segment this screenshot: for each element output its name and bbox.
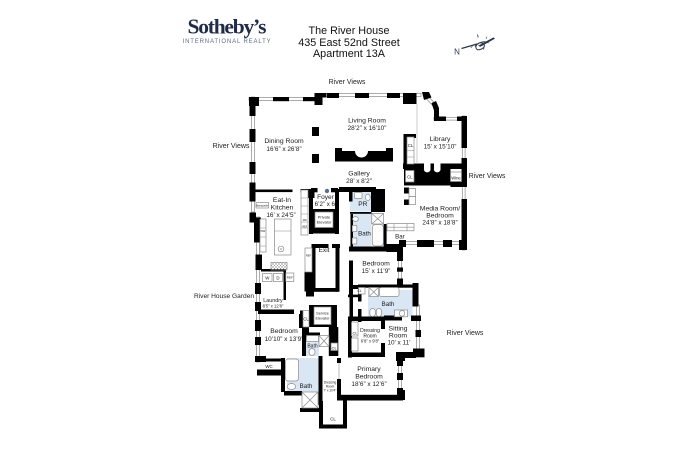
svg-text:Wine: Wine bbox=[451, 176, 461, 181]
svg-text:PR: PR bbox=[358, 201, 367, 208]
svg-text:Bath: Bath bbox=[307, 344, 318, 350]
svg-text:Living Room: Living Room bbox=[348, 118, 386, 125]
svg-text:Service: Service bbox=[316, 312, 329, 316]
svg-text:Bath: Bath bbox=[358, 230, 371, 237]
svg-text:The River House: The River House bbox=[308, 25, 389, 37]
svg-text:8’5” x 12’8”: 8’5” x 12’8” bbox=[263, 304, 284, 309]
svg-text:Media Room/: Media Room/ bbox=[420, 206, 461, 213]
svg-text:Kitchen: Kitchen bbox=[271, 205, 294, 212]
svg-text:28’2” x 16’10”: 28’2” x 16’10” bbox=[348, 125, 387, 132]
svg-text:River House Garden: River House Garden bbox=[194, 293, 254, 300]
svg-text:15’ x 15’10”: 15’ x 15’10” bbox=[424, 144, 457, 151]
svg-text:REF: REF bbox=[306, 254, 312, 258]
svg-text:River Views: River Views bbox=[213, 143, 250, 150]
svg-text:16’6” x 26’8”: 16’6” x 26’8” bbox=[266, 146, 301, 153]
svg-text:Library: Library bbox=[430, 136, 451, 143]
svg-text:CL: CL bbox=[303, 317, 309, 322]
svg-text:Exit: Exit bbox=[319, 247, 330, 254]
svg-text:Primary: Primary bbox=[357, 366, 381, 373]
svg-text:INTERNATIONAL REALTY: INTERNATIONAL REALTY bbox=[183, 39, 272, 45]
svg-text:6’8” x 9’8”: 6’8” x 9’8” bbox=[361, 339, 380, 344]
svg-text:Bedroom: Bedroom bbox=[426, 213, 454, 220]
svg-text:Bedroom: Bedroom bbox=[270, 328, 298, 335]
svg-text:Bath: Bath bbox=[382, 301, 395, 308]
svg-text:Foyer: Foyer bbox=[317, 194, 335, 201]
svg-text:Elevator: Elevator bbox=[316, 317, 331, 321]
svg-text:Bedroom: Bedroom bbox=[355, 374, 383, 381]
svg-text:Bedroom: Bedroom bbox=[362, 261, 390, 268]
svg-text:CL: CL bbox=[332, 346, 338, 351]
svg-text:10’10” x 13’9”: 10’10” x 13’9” bbox=[265, 336, 304, 343]
svg-text:Sitting: Sitting bbox=[389, 326, 408, 333]
svg-text:Dining Room: Dining Room bbox=[264, 138, 304, 145]
svg-text:28’ x 8’2”: 28’ x 8’2” bbox=[346, 178, 372, 185]
svg-text:Room: Room bbox=[389, 333, 407, 340]
svg-text:Eat-In: Eat-In bbox=[273, 197, 291, 204]
svg-text:6’2” x 6’: 6’2” x 6’ bbox=[315, 201, 337, 208]
svg-text:24’8” x 18’8”: 24’8” x 18’8” bbox=[422, 220, 457, 227]
svg-text:River Views: River Views bbox=[447, 330, 484, 337]
svg-text:7’ x 10’4”: 7’ x 10’4” bbox=[324, 389, 337, 393]
svg-text:Bar: Bar bbox=[395, 234, 405, 241]
svg-text:CL: CL bbox=[357, 289, 361, 293]
svg-text:River Views: River Views bbox=[329, 79, 366, 86]
svg-text:CL: CL bbox=[352, 331, 358, 336]
svg-text:Elevator: Elevator bbox=[317, 220, 332, 225]
svg-text:River Views: River Views bbox=[469, 173, 506, 180]
svg-text:Apartment 13A: Apartment 13A bbox=[313, 48, 386, 60]
svg-text:CL: CL bbox=[407, 175, 413, 180]
svg-text:D: D bbox=[276, 276, 279, 281]
svg-text:Banquette: Banquette bbox=[256, 203, 268, 207]
svg-text:15’ x 11’9”: 15’ x 11’9” bbox=[362, 268, 391, 275]
svg-text:435 East 52nd Street: 435 East 52nd Street bbox=[298, 37, 399, 49]
svg-text:18’6” x 12’6”: 18’6” x 12’6” bbox=[351, 381, 386, 388]
svg-text:DW: DW bbox=[261, 229, 266, 233]
svg-text:CL: CL bbox=[408, 143, 414, 148]
svg-text:REF: REF bbox=[302, 226, 307, 229]
svg-text:WC: WC bbox=[265, 364, 272, 369]
svg-text:N: N bbox=[454, 48, 460, 57]
svg-text:10’ x 11’: 10’ x 11’ bbox=[387, 340, 411, 347]
svg-text:Bath: Bath bbox=[300, 383, 313, 390]
svg-text:Sotheby’s: Sotheby’s bbox=[188, 15, 267, 39]
svg-text:Gallery: Gallery bbox=[348, 171, 370, 178]
svg-text:16’ x 24’5”: 16’ x 24’5” bbox=[266, 212, 295, 219]
svg-text:REF: REF bbox=[287, 276, 293, 280]
svg-text:CL: CL bbox=[330, 417, 336, 422]
